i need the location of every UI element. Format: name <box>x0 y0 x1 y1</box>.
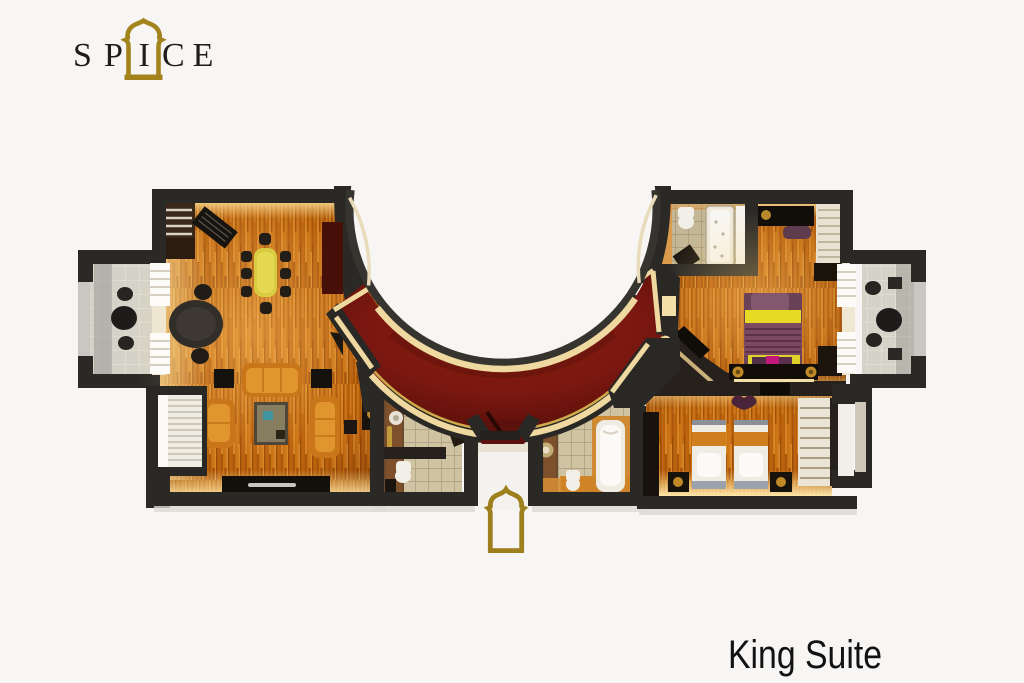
svg-text:I: I <box>139 37 150 74</box>
svg-text:King Suite: King Suite <box>728 631 882 676</box>
svg-text:S: S <box>73 37 104 74</box>
svg-text:P: P <box>104 37 123 74</box>
svg-text:CE: CE <box>162 37 221 74</box>
